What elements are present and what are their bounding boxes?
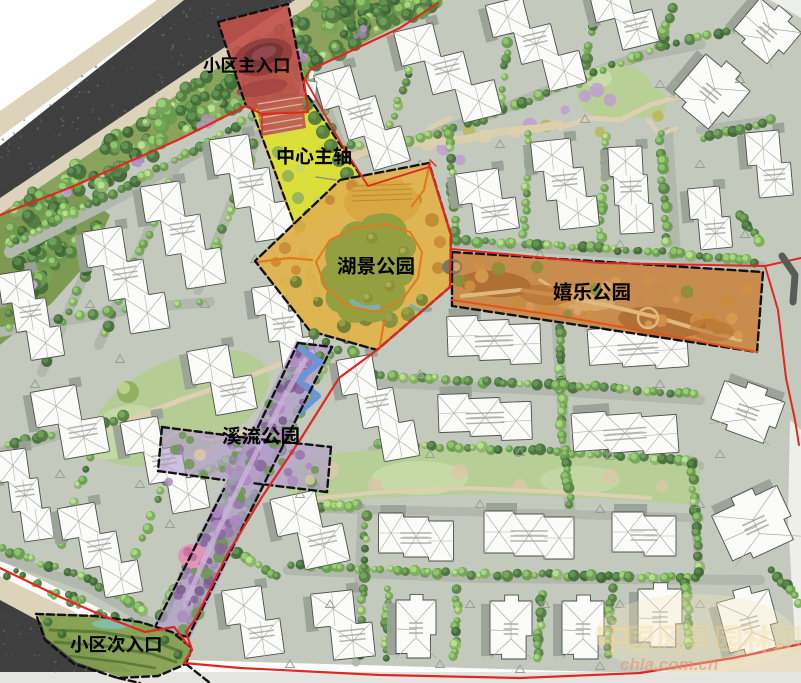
svg-text:chla.com.cn: chla.com.cn [620,655,718,674]
